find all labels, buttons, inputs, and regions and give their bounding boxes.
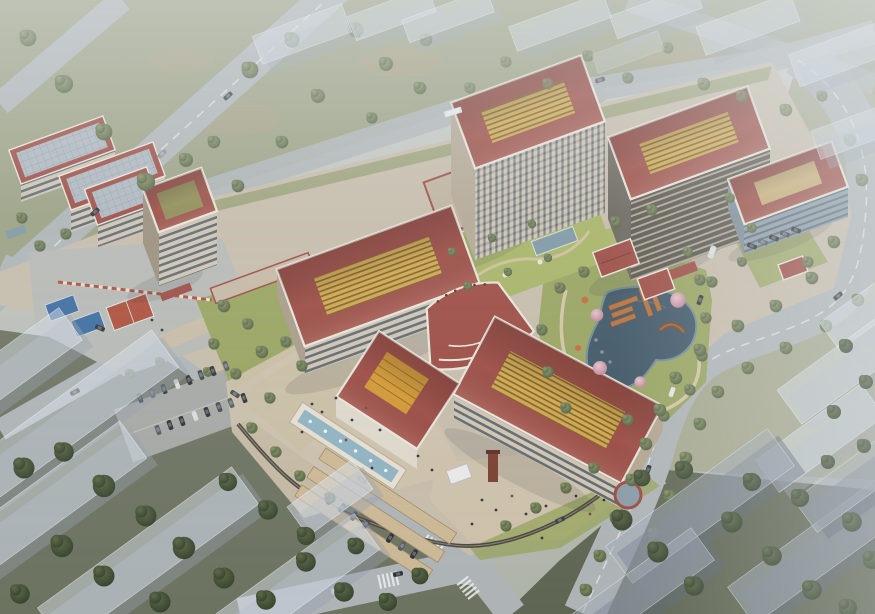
aerial-rendering bbox=[0, 0, 875, 614]
rendering-canvas bbox=[0, 0, 875, 614]
haze-overlay-right bbox=[0, 0, 875, 614]
